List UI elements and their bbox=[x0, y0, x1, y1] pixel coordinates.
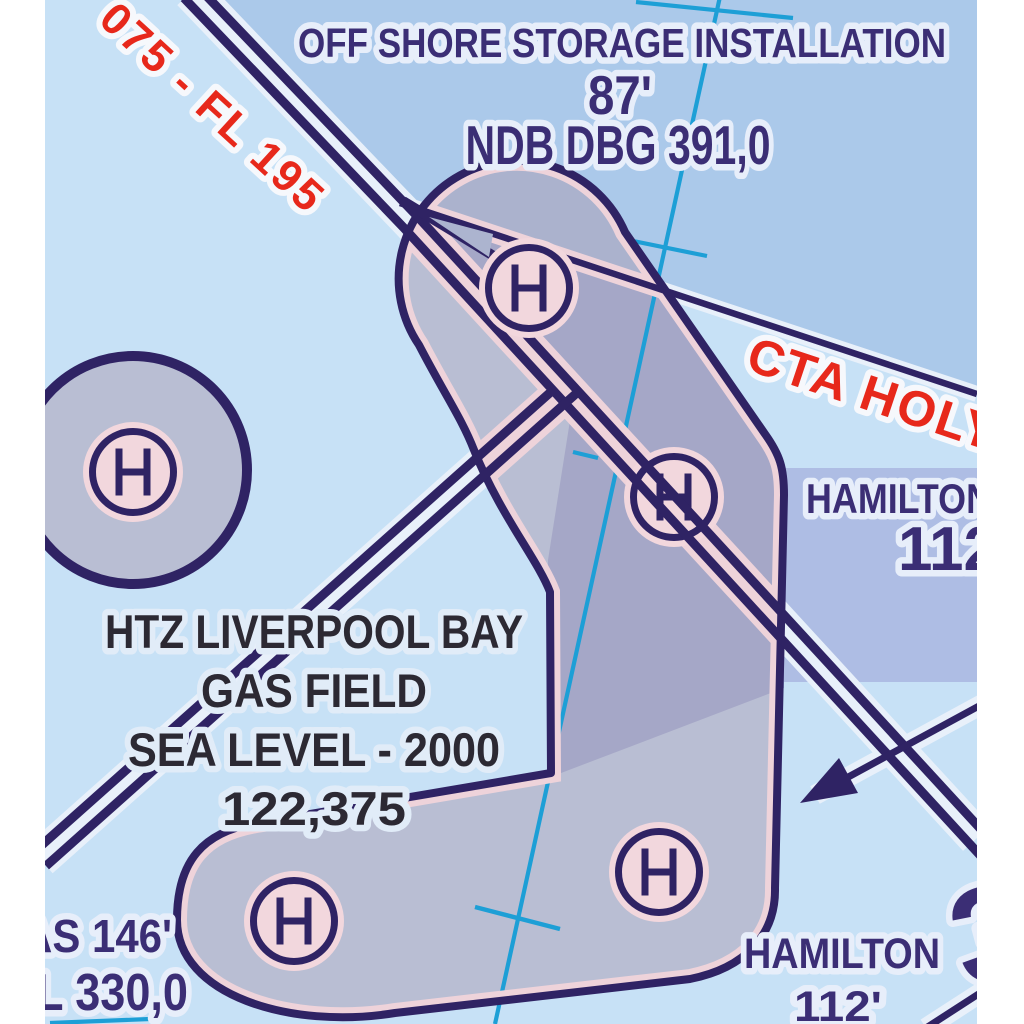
svg-text:NDB DBG 391,0: NDB DBG 391,0 bbox=[466, 114, 771, 176]
svg-text:L 330,0: L 330,0 bbox=[36, 964, 188, 1022]
svg-text:HAMILTON: HAMILTON bbox=[744, 930, 940, 978]
svg-text:SEA LEVEL - 2000: SEA LEVEL - 2000 bbox=[128, 723, 500, 776]
svg-text:112': 112' bbox=[794, 983, 882, 1024]
svg-text:122,375: 122,375 bbox=[222, 782, 406, 835]
svg-text:GAS FIELD: GAS FIELD bbox=[201, 664, 427, 717]
svg-text:HTZ LIVERPOOL BAY: HTZ LIVERPOOL BAY bbox=[105, 605, 523, 658]
svg-text:OFF SHORE STORAGE INSTALLATION: OFF SHORE STORAGE INSTALLATION bbox=[298, 20, 946, 66]
